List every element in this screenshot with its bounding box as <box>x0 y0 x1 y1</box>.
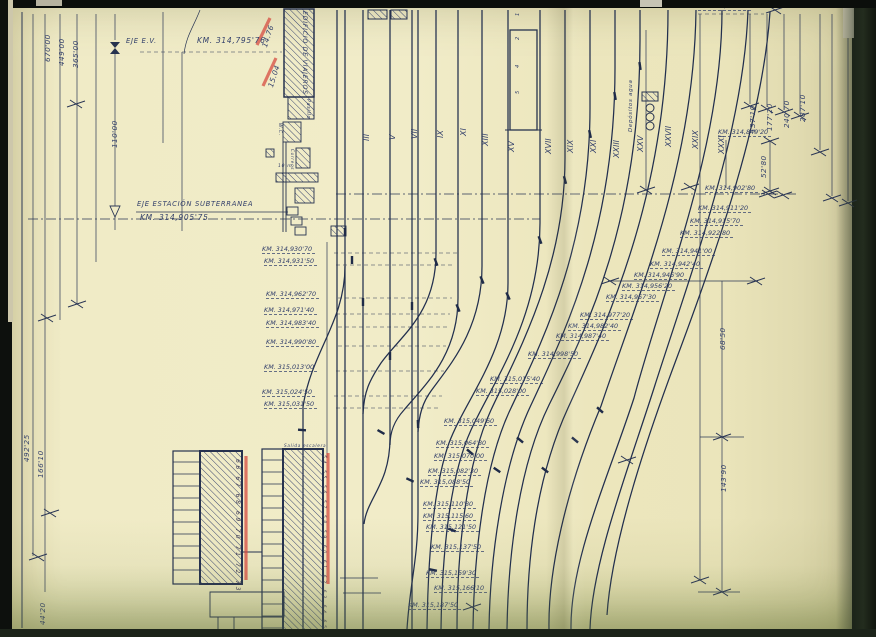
center-platform <box>505 30 542 130</box>
track-plan-drawing <box>0 0 876 637</box>
underground-access-building-right <box>262 449 323 637</box>
platform-ends <box>368 10 407 19</box>
edificio-viajeros-building <box>284 9 314 119</box>
axis-marker-icon <box>110 42 120 54</box>
scanned-track-plan: 670'00449'00365'00110'00492'25166'1044'2… <box>0 0 876 637</box>
underground-access-building-left <box>173 451 242 584</box>
dimension-lines <box>22 10 848 628</box>
switch-ticks <box>298 62 642 572</box>
survey-cross-marks <box>29 6 857 611</box>
water-deposit-icon <box>642 92 658 130</box>
buildings <box>110 9 658 637</box>
